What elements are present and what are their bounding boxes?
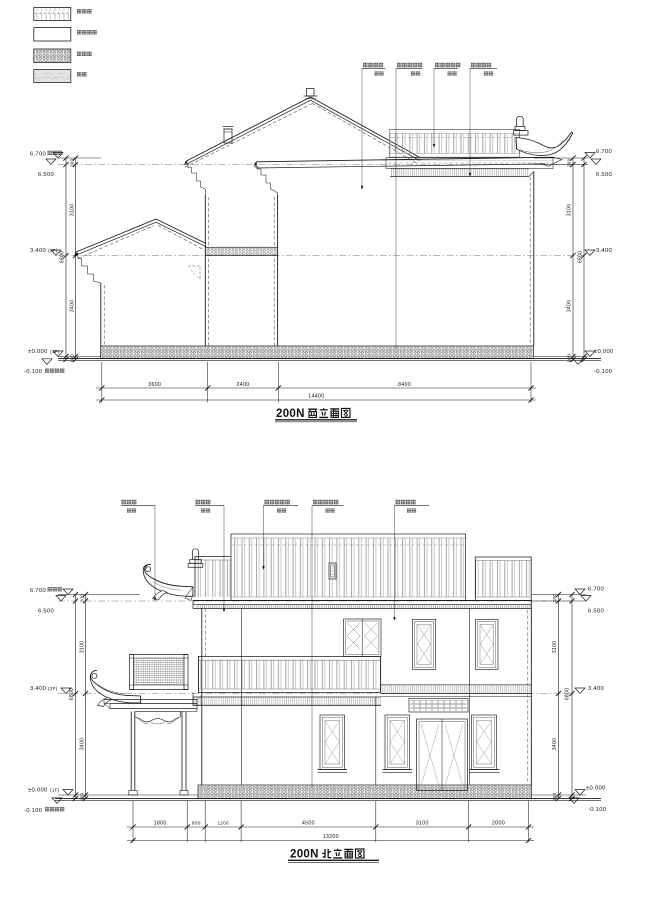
svg-text:3100: 3100 xyxy=(70,204,76,216)
svg-text:6800: 6800 xyxy=(565,688,571,700)
svg-text:3100: 3100 xyxy=(552,641,558,653)
svg-text:3.400: 3.400 xyxy=(588,686,604,692)
svg-text:3100: 3100 xyxy=(80,641,86,653)
svg-text:600: 600 xyxy=(192,821,201,827)
svg-text:6800: 6800 xyxy=(60,251,66,263)
svg-text:8400: 8400 xyxy=(398,382,411,388)
svg-text:4500: 4500 xyxy=(302,821,315,827)
svg-text:±0.000: ±0.000 xyxy=(28,349,48,355)
svg-text:±0.000: ±0.000 xyxy=(594,349,614,355)
svg-text:100: 100 xyxy=(567,354,572,363)
svg-text:(2F): (2F) xyxy=(48,686,58,691)
svg-text:200N: 200N xyxy=(290,849,319,861)
svg-text:3.400: 3.400 xyxy=(30,686,46,692)
svg-text:3400: 3400 xyxy=(70,300,76,312)
svg-text:3400: 3400 xyxy=(552,738,558,750)
svg-text:3600: 3600 xyxy=(148,382,161,388)
svg-text:6.700: 6.700 xyxy=(588,586,604,592)
svg-text:3.400: 3.400 xyxy=(596,248,612,254)
svg-text:100: 100 xyxy=(70,354,75,363)
svg-text:6.500: 6.500 xyxy=(596,172,612,178)
svg-text:6800: 6800 xyxy=(578,251,584,263)
svg-text:2000: 2000 xyxy=(492,821,505,827)
svg-text:3400: 3400 xyxy=(567,300,573,312)
svg-text:3400: 3400 xyxy=(80,738,86,750)
svg-text:6.700: 6.700 xyxy=(30,588,46,594)
svg-text:±0.000: ±0.000 xyxy=(586,785,606,791)
svg-text:6.500: 6.500 xyxy=(588,608,604,614)
svg-text:100: 100 xyxy=(552,792,557,801)
svg-text:(1F): (1F) xyxy=(50,787,60,792)
svg-text:-0.100: -0.100 xyxy=(24,808,42,814)
svg-text:±0.000: ±0.000 xyxy=(28,787,48,793)
svg-text:200: 200 xyxy=(552,594,557,603)
svg-text:3100: 3100 xyxy=(416,821,429,827)
svg-text:100: 100 xyxy=(80,792,85,801)
svg-text:6.700: 6.700 xyxy=(596,149,612,155)
svg-text:-0.100: -0.100 xyxy=(594,369,612,375)
svg-text:-0.100: -0.100 xyxy=(24,369,42,375)
svg-text:1200: 1200 xyxy=(217,821,229,826)
svg-text:3100: 3100 xyxy=(567,204,573,216)
svg-text:14400: 14400 xyxy=(308,394,324,400)
svg-text:3.400: 3.400 xyxy=(30,248,46,254)
svg-text:-0.100: -0.100 xyxy=(588,807,606,813)
svg-text:6.500: 6.500 xyxy=(38,608,54,614)
svg-text:6.700: 6.700 xyxy=(30,151,46,157)
svg-text:1800: 1800 xyxy=(154,821,167,827)
svg-text:13200: 13200 xyxy=(323,834,339,840)
svg-text:2400: 2400 xyxy=(237,382,250,388)
svg-text:200: 200 xyxy=(80,594,85,603)
svg-text:200: 200 xyxy=(70,158,75,167)
svg-text:200: 200 xyxy=(567,158,572,167)
svg-text:6.500: 6.500 xyxy=(38,172,54,178)
svg-text:200N: 200N xyxy=(276,408,305,420)
